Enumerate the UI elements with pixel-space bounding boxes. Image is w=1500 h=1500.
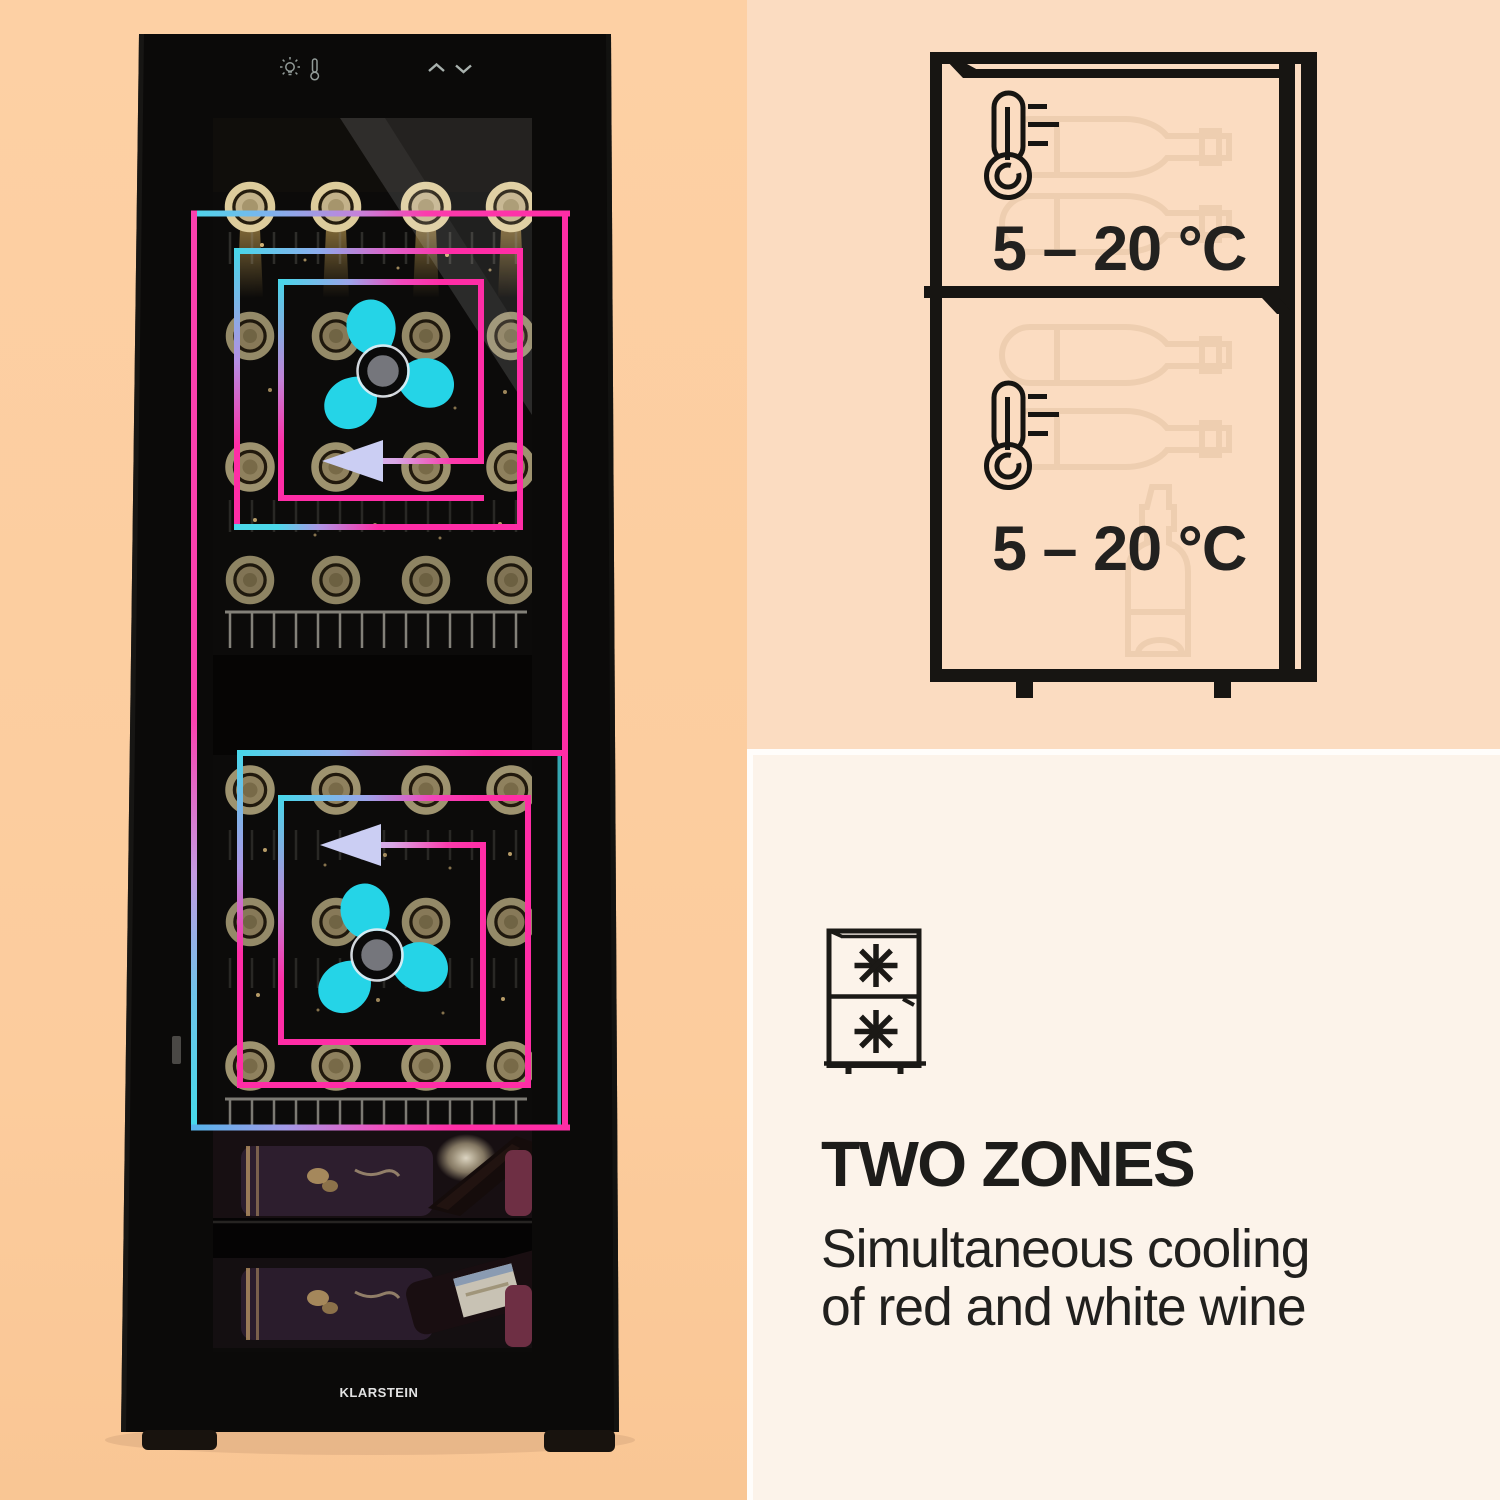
svg-text:5 – 20 °C: 5 – 20 °C [992,214,1246,284]
svg-text:TWO ZONES: TWO ZONES [821,1128,1194,1200]
svg-text:Simultaneous cooling: Simultaneous cooling [821,1220,1310,1279]
svg-text:KLARSTEIN: KLARSTEIN [340,1385,419,1400]
svg-text:5 – 20 °C: 5 – 20 °C [992,514,1246,584]
svg-text:of red and white wine: of red and white wine [821,1278,1306,1337]
